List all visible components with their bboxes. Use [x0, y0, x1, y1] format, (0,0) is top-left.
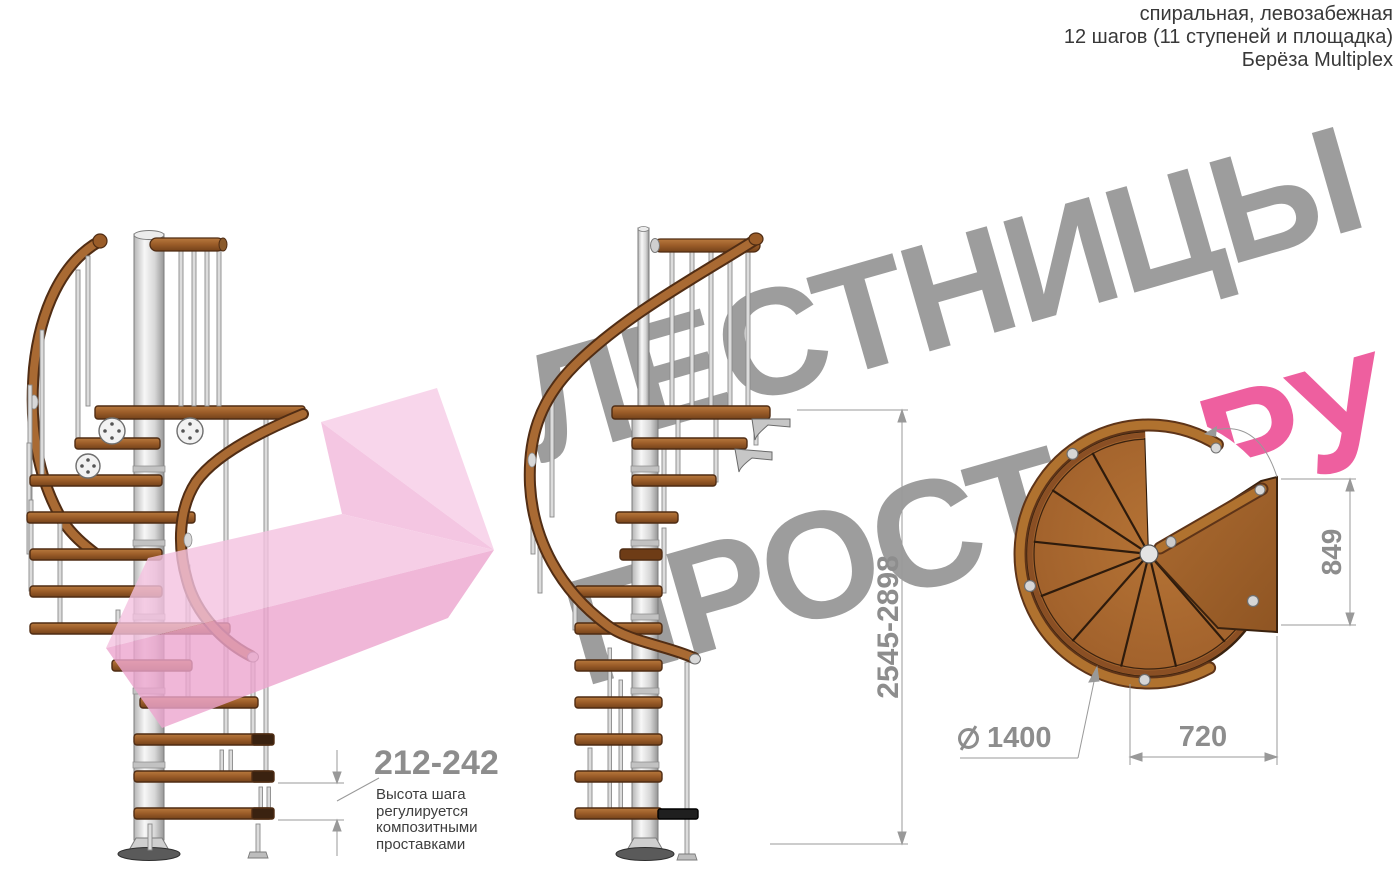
dim-diameter-value: 1400 [987, 722, 1052, 755]
step-height-note: Высота шага регулируется композитными пр… [376, 787, 478, 853]
dim-step-height-lines [278, 750, 379, 856]
dim-landing-depth-label: 849 [1316, 492, 1346, 612]
note-line: проставками [376, 837, 478, 854]
note-line: Высота шага [376, 787, 478, 804]
middle-elevation-view [528, 227, 790, 861]
note-line: композитными [376, 820, 478, 837]
dim-diameter-label: 1400 [958, 722, 1052, 755]
diameter-icon [958, 728, 979, 749]
drawing-page: ЛЕСТНИЦЫ ПРОСТО.РУ [0, 0, 1400, 895]
dim-step-height-label: 212-242 [374, 744, 499, 783]
title-type: спиральная, левозабежная [1064, 3, 1393, 26]
title-block: спиральная, левозабежная 12 шагов (11 ст… [1064, 3, 1393, 72]
staircase-technical-drawing [0, 0, 1400, 895]
plan-center-pole [1140, 545, 1158, 563]
dim-landing-width-label: 720 [1163, 721, 1243, 754]
title-steps: 12 шагов (11 ступеней и площадка) [1064, 26, 1393, 49]
note-line: регулируется [376, 804, 478, 821]
dim-total-height-label: 2545-2898 [872, 517, 904, 737]
plan-view [1020, 414, 1277, 685]
title-material: Берёза Multiplex [1064, 49, 1393, 72]
left-center-pole [118, 231, 180, 861]
